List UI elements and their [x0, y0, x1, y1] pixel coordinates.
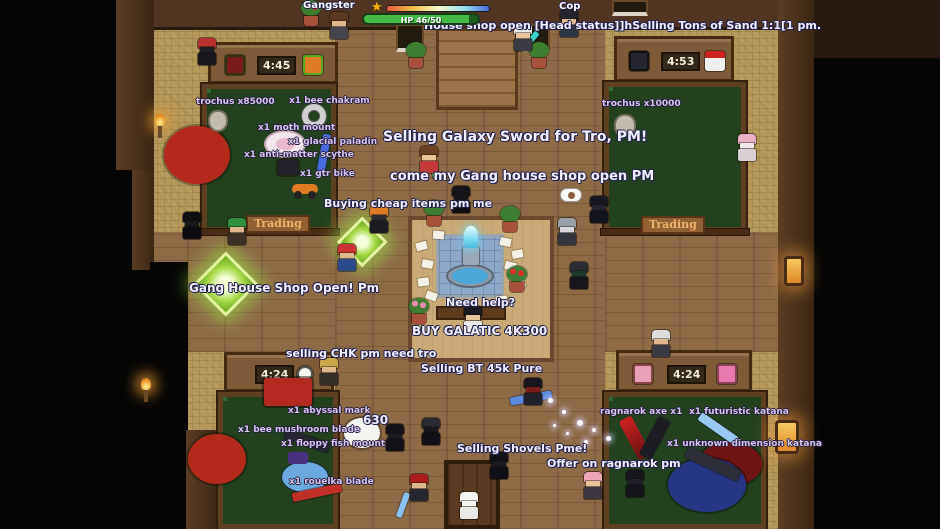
- item-trochus-85000: trochus x85000: [196, 97, 275, 107]
- item-rouelka-blade: x1 rouelka blade: [289, 477, 374, 487]
- chat-buy-galatic: BUY GALATIC 4K300: [412, 324, 547, 338]
- hp-bar-text: HP 46/50: [364, 16, 478, 25]
- item-floppy-fish-mount: x1 floppy fish mount: [281, 439, 385, 449]
- chat-selling-shovels: Selling Shovels Pme!: [457, 442, 587, 455]
- chat-house-shop: House shop open [Head status]]hSelling T…: [424, 19, 821, 32]
- game-viewport[interactable]: 4:45 Trading 4:53 Trading 4:24 4:24: [0, 0, 940, 529]
- player-name-right: Cop: [559, 1, 580, 12]
- item-gtr-bike: x1 gtr bike: [300, 169, 355, 179]
- item-ragnarok-axe: ragnarok axe x1: [600, 407, 682, 417]
- item-trochus-10000: trochus x10000: [602, 99, 681, 109]
- chat-gang-house-shop-open: Gang House Shop Open! Pm: [189, 281, 379, 295]
- text-overlay-layer: House shop open [Head status]]hSelling T…: [0, 0, 940, 529]
- item-moth-mount: x1 moth mount: [258, 123, 335, 133]
- item-bee-chakram: x1 bee chakram: [289, 96, 370, 106]
- xp-bar: [386, 5, 490, 12]
- chat-selling-chk: selling CHK pm need tro: [286, 347, 436, 360]
- item-abyssal-mark: x1 abyssal mark: [288, 406, 370, 416]
- chat-selling-bt: Selling BT 45k Pure: [421, 362, 542, 375]
- chat-gang-house-open: come my Gang house shop open PM: [390, 169, 654, 184]
- hp-bar: HP 46/50: [362, 13, 480, 25]
- chat-selling-galaxy-sword: Selling Galaxy Sword for Tro, PM!: [383, 129, 647, 145]
- item-unknown-dimension-katana: x1 unknown dimension katana: [667, 439, 822, 449]
- item-futuristic-katana: x1 futuristic katana: [689, 407, 789, 417]
- item-bee-mushroom-blade: x1 bee mushroom blade: [238, 425, 360, 435]
- chat-need-help: Need help?: [446, 296, 515, 309]
- player-name-left: Gangster: [303, 0, 355, 11]
- chat-buying-cheap-items: Buying cheap items pm me: [324, 197, 492, 210]
- item-anti-matter: x1 anti-matter scythe: [244, 150, 354, 160]
- item-glacial-paladin: x1 glacial paladin: [288, 137, 377, 147]
- chat-offer-ragnarok: Offer on ragnarok pm: [547, 457, 681, 470]
